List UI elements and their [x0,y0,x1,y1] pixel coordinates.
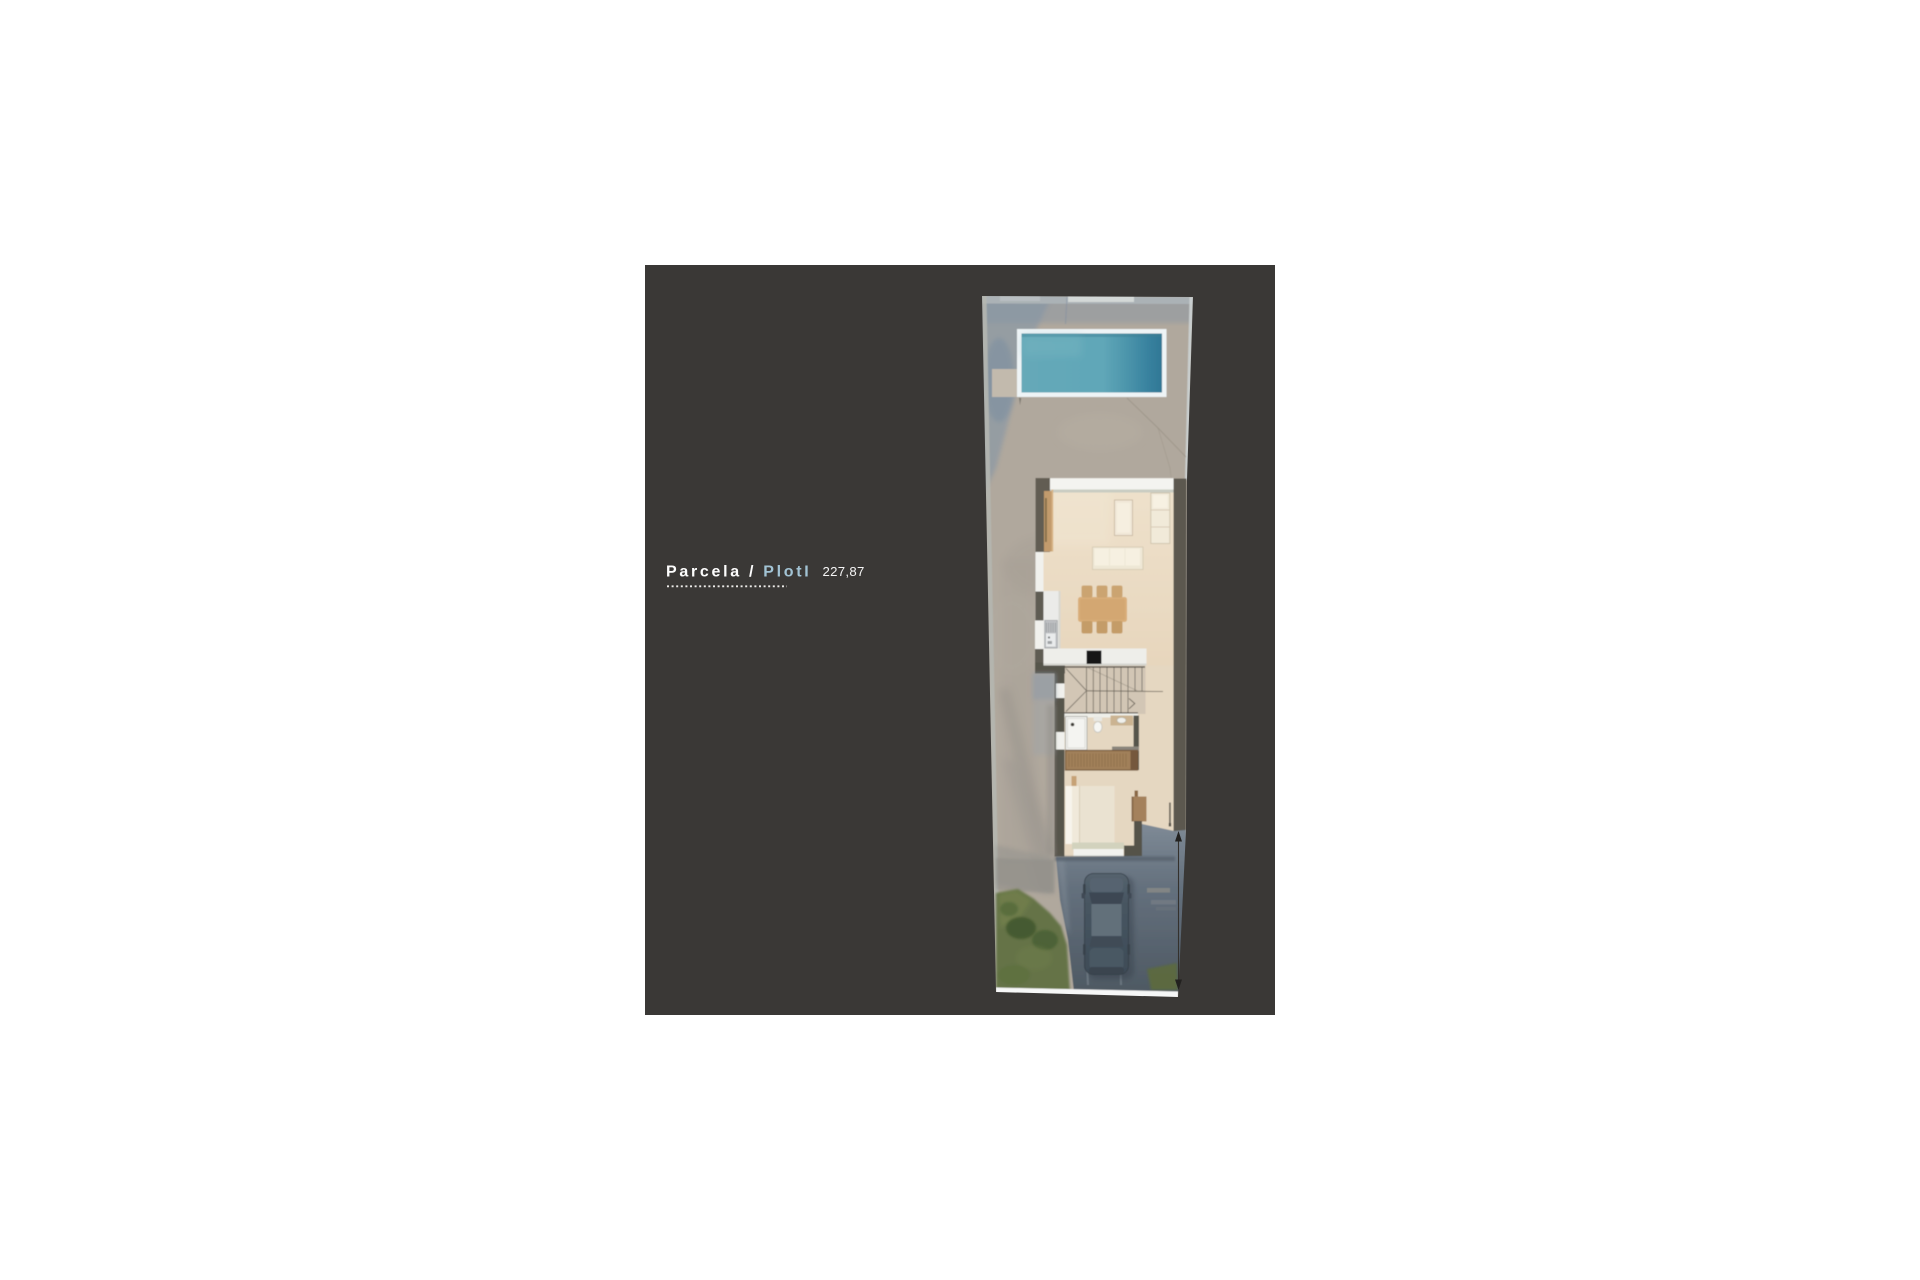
svg-text:227,87: 227,87 [823,564,865,579]
svg-text:Parcela / PlotI: Parcela / PlotI [666,564,811,581]
